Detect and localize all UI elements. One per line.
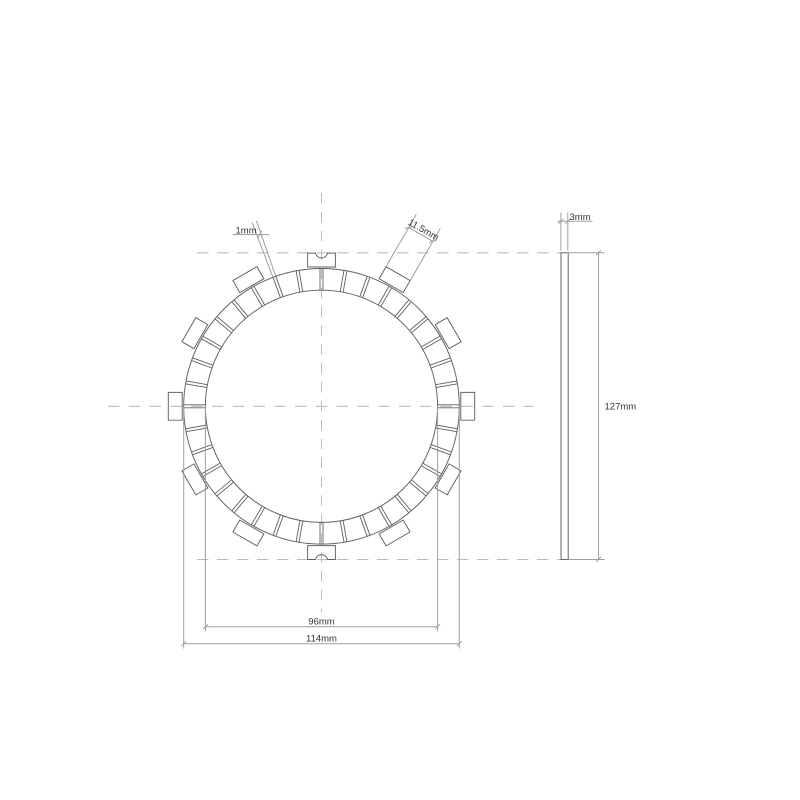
- svg-text:127mm: 127mm: [605, 402, 637, 413]
- svg-text:114mm: 114mm: [306, 633, 337, 644]
- svg-text:3mm: 3mm: [570, 212, 591, 223]
- svg-text:96mm: 96mm: [308, 616, 334, 627]
- svg-text:1mm: 1mm: [236, 225, 257, 236]
